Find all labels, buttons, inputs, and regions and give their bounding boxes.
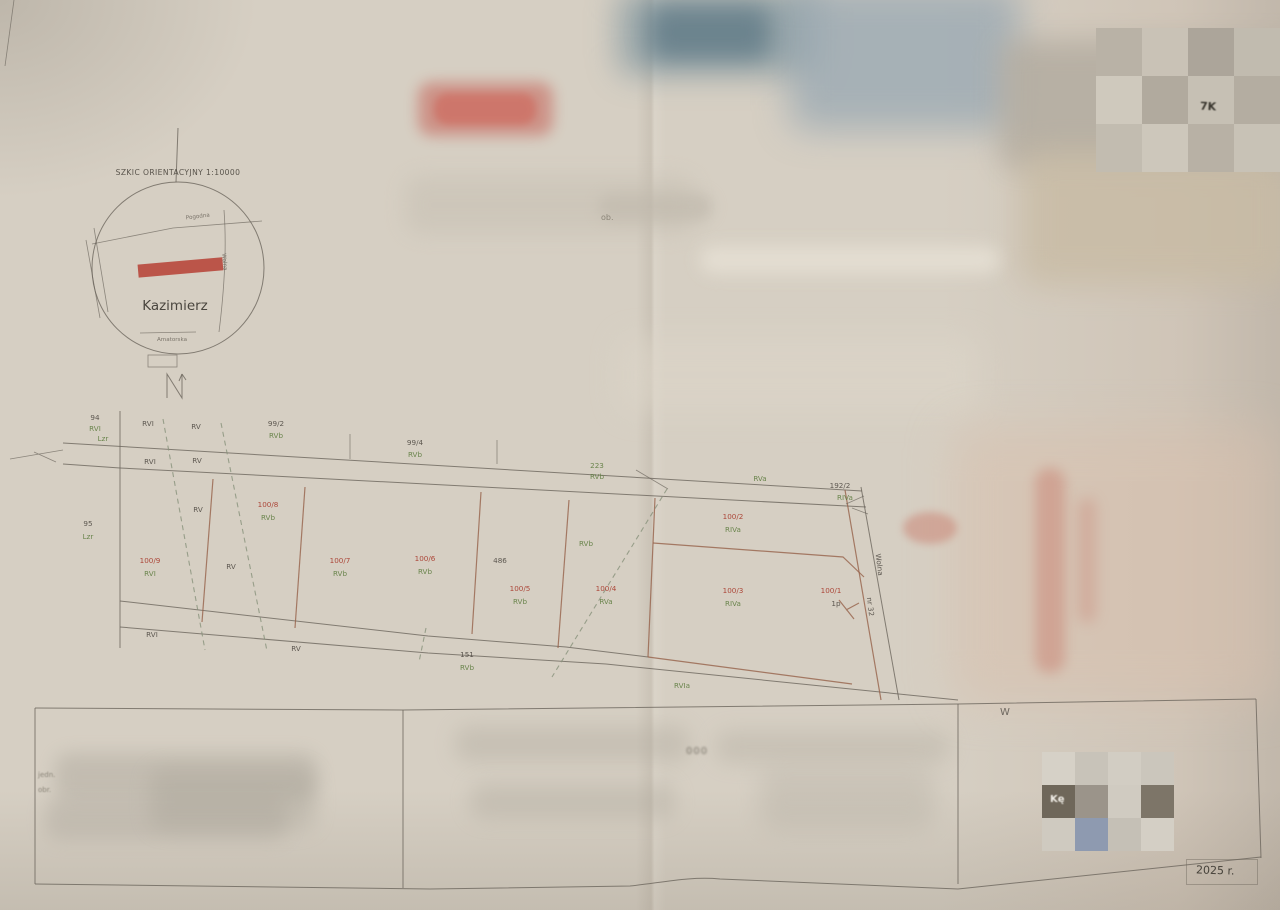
- map-label-192-2: 192/2: [830, 481, 851, 490]
- inset-place-label: Kazimierz: [142, 298, 208, 314]
- map-label-rvb: RVb: [579, 539, 594, 548]
- map-label-100-5: 100/5: [510, 584, 531, 593]
- title-block-frame: [35, 699, 1261, 889]
- map-label-rvb: RVb: [590, 472, 605, 481]
- map-label-lzr: Lzr: [83, 532, 94, 541]
- map-label-100-1: 100/1: [821, 586, 842, 595]
- orientation-inset: SZKIC ORIENTACYJNY 1:10000 Kazimierz Pog…: [86, 128, 264, 398]
- map-label-rv: RV: [192, 456, 202, 465]
- map-label-100-7: 100/7: [330, 556, 351, 565]
- paper-edge-line: [5, 0, 14, 66]
- map-label-rvb: RVb: [333, 569, 348, 578]
- map-label-100-8: 100/8: [258, 500, 279, 509]
- map-label-rvi: RVI: [89, 424, 101, 433]
- map-label-1p: 1p: [831, 599, 841, 608]
- map-label-99-2: 99/2: [268, 419, 284, 428]
- inset-street-top: Pogodna: [186, 213, 211, 222]
- inset-street-bottom: Amatorska: [157, 337, 187, 343]
- map-label-rvb: RVb: [418, 567, 433, 576]
- map-label-rvia: RVIa: [674, 681, 690, 690]
- map-label-rvi: RVI: [142, 419, 154, 428]
- map-label-rv: RV: [291, 644, 301, 653]
- map-label-riva: RIVa: [837, 493, 853, 502]
- inset-title: SZKIC ORIENTACYJNY 1:10000: [116, 168, 241, 177]
- map-label-100-9: 100/9: [140, 556, 161, 565]
- map-label-151: 151: [460, 650, 474, 659]
- map-label-rvb: RVb: [513, 597, 528, 606]
- map-label-99-4: 99/4: [407, 438, 424, 447]
- map-label-wolna: Wolna: [874, 553, 886, 576]
- photographed-survey-sketch: SZKIC ORIENTACYJNY 1:10000 Kazimierz Pog…: [0, 0, 1280, 910]
- map-label-rv: RV: [193, 505, 203, 514]
- map-label-lzr: Lzr: [98, 434, 109, 443]
- map-label-rvi: RVI: [146, 630, 158, 639]
- map-label-rva: RVa: [753, 474, 766, 483]
- map-label-100-2: 100/2: [723, 512, 744, 521]
- map-label-rvb: RVb: [460, 663, 475, 672]
- map-label-94: 94: [90, 413, 100, 422]
- map-label-95: 95: [83, 519, 92, 528]
- map-label-rvb: RVb: [408, 450, 423, 459]
- map-label-100-6: 100/6: [415, 554, 436, 563]
- map-label-rvb: RVb: [269, 431, 284, 440]
- map-label-rvb: RVb: [261, 513, 276, 522]
- map-label-rv: RV: [226, 562, 236, 571]
- map-label-rvi: RVI: [144, 457, 156, 466]
- map-label-100-4: 100/4: [596, 584, 617, 593]
- map-label-100-3: 100/3: [723, 586, 744, 595]
- north-arrow-icon: [167, 374, 186, 398]
- inset-legend-box: [148, 355, 177, 367]
- map-label-223: 223: [590, 461, 604, 470]
- map-label-riva: RIVa: [725, 525, 741, 534]
- map-label-rva: RVa: [599, 597, 612, 606]
- highlighted-road-strip: [138, 257, 224, 277]
- survey-drawing: SZKIC ORIENTACYJNY 1:10000 Kazimierz Pog…: [0, 0, 1280, 910]
- map-label-rvi: RVI: [144, 569, 156, 578]
- map-label-486: 486: [493, 556, 507, 565]
- cadastral-map: 94RVIRVIRV99/2RVb99/4RVbLzrRVIRV223RVbRV…: [10, 411, 958, 700]
- map-label-riva: RIVa: [725, 599, 741, 608]
- map-label-rv: RV: [191, 422, 201, 431]
